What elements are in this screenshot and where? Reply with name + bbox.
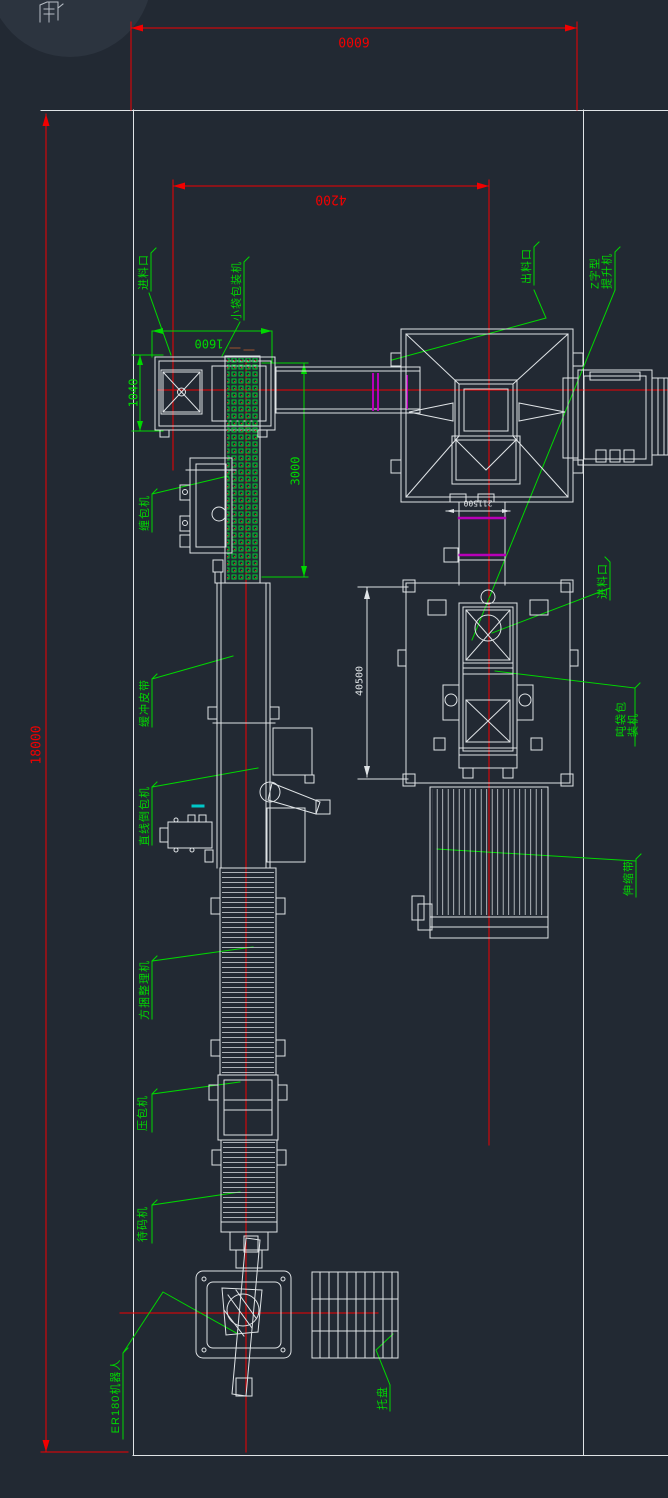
leader-robot	[123, 1292, 238, 1439]
label-staging-machine: 待码机	[137, 1206, 149, 1242]
dim-211500: 211500	[464, 498, 493, 507]
dim-40500: 40500	[354, 666, 365, 696]
label-bale-arranger: 方捆整理机	[139, 960, 151, 1020]
label-line-bag-machine: 直线倒包机	[139, 786, 151, 846]
label-small-bag-machine: 小袋包装机	[231, 261, 243, 321]
dim-1600: 1600	[195, 336, 224, 349]
z-elevator-machine	[563, 370, 668, 465]
label-bag-press: 压包机	[137, 1095, 149, 1131]
dim-3000: 3000	[289, 457, 302, 486]
room-outline[interactable]	[41, 110, 668, 1456]
label-wrap-machine: 缠包机	[139, 495, 151, 531]
label-buffer-belt: 缓冲皮带	[139, 679, 151, 727]
pallet	[312, 1272, 398, 1358]
watermark-logo	[0, 0, 152, 57]
dim-1040: 1040	[127, 379, 140, 408]
label-telescopic-belt: 伸缩带	[623, 860, 635, 896]
drawing-linework[interactable]	[0, 0, 668, 1498]
label-pallet: 托盘	[377, 1386, 389, 1410]
dim-6000: 6000	[338, 33, 369, 48]
buffer-belt-conveyor	[208, 583, 279, 868]
label-inlet-right: 进料口	[597, 563, 609, 599]
label-inlet-left: 进料口	[138, 254, 150, 290]
label-robot: ER180机器人	[110, 1359, 122, 1434]
dim-4200: 4200	[315, 191, 346, 206]
palletizing-robot	[196, 1236, 291, 1396]
machines[interactable]	[155, 329, 668, 1396]
green-hatched-belt	[225, 348, 260, 583]
bale-arranger-conveyor	[211, 868, 285, 1075]
leader-bag-press	[152, 1082, 240, 1132]
line-bag-machine	[160, 723, 330, 862]
cad-drawing-viewport[interactable]: 6000 4200 18000 1600 1040 3000 40500 211…	[0, 0, 668, 1498]
red-dimensions[interactable]	[41, 22, 668, 1452]
label-z-elevator: Z字型 提升机	[590, 253, 615, 289]
label-ton-bag-machine: 吨袋包装机	[616, 697, 641, 737]
staging-conveyor	[212, 1140, 286, 1268]
telescopic-conveyor	[412, 787, 548, 938]
label-outlet: 出料口	[521, 248, 533, 284]
dim-18000: 18000	[31, 725, 46, 764]
